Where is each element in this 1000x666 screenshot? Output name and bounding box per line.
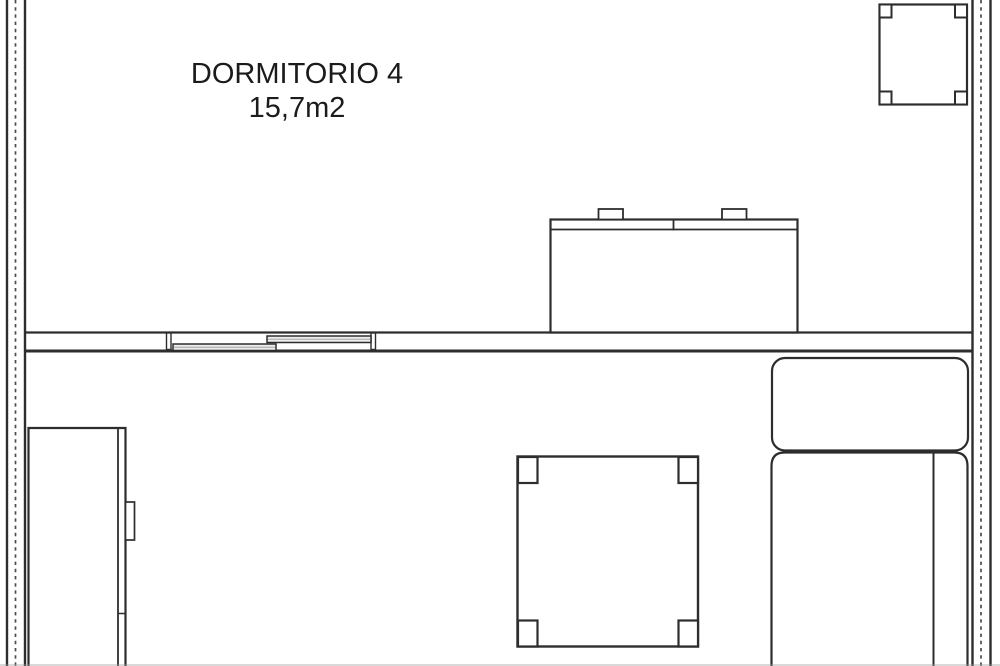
sofa-backrest [772, 358, 968, 451]
door-jamb-left [167, 333, 172, 350]
side-table [880, 5, 968, 105]
coffee-table-leg-top-left [518, 457, 538, 483]
right-wall [973, 0, 991, 666]
divider-wall [25, 333, 972, 352]
dresser [551, 209, 798, 333]
side-table-leg-bottom-right [955, 92, 967, 105]
sofa-seat [772, 453, 968, 666]
coffee-table-top [518, 457, 699, 647]
coffee-table-leg-bottom-right [679, 621, 699, 647]
wardrobe-handle [126, 502, 135, 540]
dresser-body [551, 220, 798, 333]
wardrobe-body [29, 428, 126, 666]
left-wall [7, 0, 25, 666]
side-table-leg-bottom-left [880, 92, 892, 105]
wardrobe [29, 428, 135, 666]
side-table-leg-top-left [880, 5, 892, 18]
coffee-table-leg-top-right [679, 457, 699, 483]
coffee-table [518, 457, 699, 647]
side-table-leg-top-right [955, 5, 967, 18]
room-area-label: 15,7m2 [249, 92, 346, 124]
floor-plan: DORMITORIO 4 15,7m2 [0, 0, 1000, 666]
room-label: DORMITORIO 4 [191, 58, 403, 90]
dresser-handle-left [599, 209, 624, 220]
floor-plan-drawing: DORMITORIO 4 15,7m2 [0, 0, 1000, 666]
sofa [772, 358, 969, 666]
coffee-table-leg-bottom-left [518, 621, 538, 647]
sliding-door [173, 336, 371, 351]
dresser-handle-right [722, 209, 747, 220]
side-table-top [880, 5, 968, 105]
